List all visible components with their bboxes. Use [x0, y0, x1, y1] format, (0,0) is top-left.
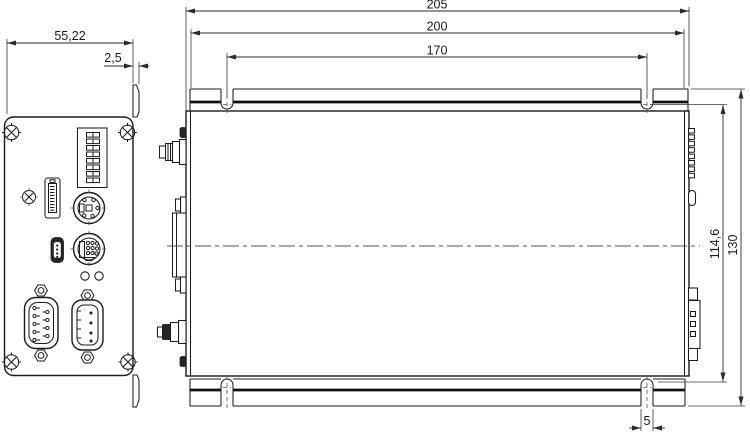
coax-connector-side: [160, 140, 187, 165]
screw-head-side: [180, 357, 186, 367]
enclosure-body: [186, 111, 689, 376]
dim-label-55-22: 55,22: [54, 29, 85, 43]
side-connectors-left: [158, 128, 187, 367]
technical-drawing-page: 205 200 170 55,22 2,5: [0, 0, 750, 437]
led: [95, 272, 103, 280]
dim-label-2-5: 2,5: [104, 51, 121, 65]
mini-usb-connector: [51, 238, 64, 263]
push-button-side: [689, 191, 696, 206]
dim-label-130: 130: [726, 235, 740, 256]
technical-drawing: 205 200 170 55,22 2,5: [0, 0, 750, 437]
dsub-side: [173, 197, 187, 293]
jack-screw: [35, 350, 48, 361]
dim-label-205: 205: [427, 0, 448, 12]
coax-connector-nut-side: [158, 321, 187, 344]
bottom-mounting-flange: [190, 376, 685, 411]
side-features-right: [689, 129, 701, 361]
dim-label-200: 200: [427, 20, 448, 34]
jack-screw: [81, 352, 94, 363]
front-view: [2, 85, 139, 407]
led: [81, 272, 89, 280]
dim-label-5: 5: [644, 414, 651, 428]
dsub-side: [689, 288, 701, 361]
dim-label-170: 170: [427, 44, 448, 58]
front-panel-plate: [5, 117, 134, 376]
dim-label-114-6: 114,6: [708, 229, 722, 259]
dip-switch-block: [78, 128, 108, 188]
side-view: [158, 89, 701, 411]
screw-head-side: [180, 128, 186, 138]
jack-screw: [35, 285, 48, 296]
dimension-slot-width: 5: [629, 409, 665, 431]
dimension-front-width: 55,22: [7, 29, 133, 114]
dimension-tab-thickness: 2,5: [104, 51, 149, 84]
display-connector: [45, 178, 60, 218]
